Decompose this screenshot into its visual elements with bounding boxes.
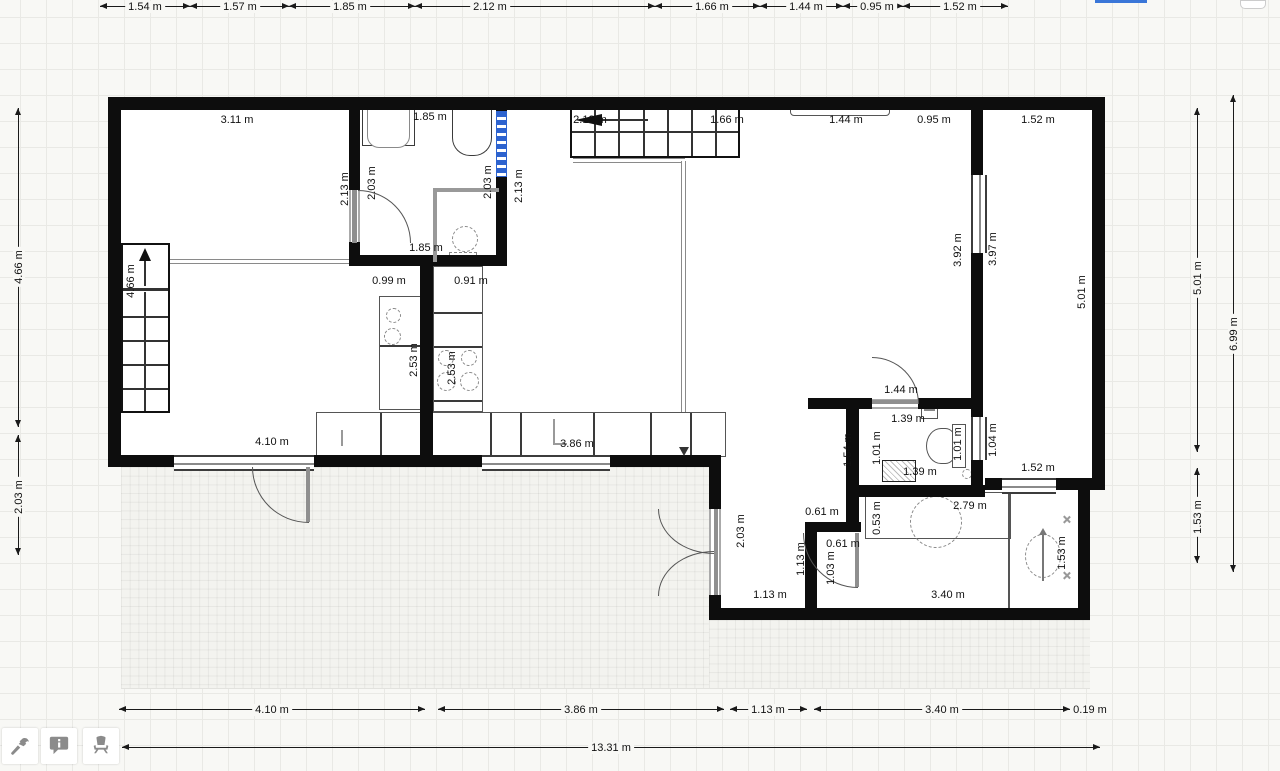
- dimension-label: 13.31 m: [588, 742, 634, 754]
- washer-front: [367, 106, 410, 148]
- dimension-label: 1.13 m: [748, 704, 788, 716]
- build-tool-button[interactable]: [2, 728, 38, 764]
- dimension-label: 2.03 m: [13, 477, 25, 517]
- wall-rightroom-bottom-b[interactable]: [1056, 478, 1105, 490]
- chair-icon: [90, 734, 112, 759]
- measurement-label: 1.01 m: [871, 431, 883, 465]
- measurement-label: 0.95 m: [917, 114, 951, 126]
- wall-left[interactable]: [108, 97, 121, 467]
- dimension-line: [896, 3, 903, 9]
- furniture-tool-button[interactable]: [83, 728, 119, 764]
- wall-rightroom-bottom-a[interactable]: [985, 478, 1002, 490]
- shower-drain: [452, 226, 478, 252]
- wall-bottom-c[interactable]: [610, 455, 721, 467]
- dimension-label: 1.66 m: [692, 1, 732, 13]
- dimension-line: [1093, 744, 1100, 750]
- dimension-line: [1194, 468, 1200, 475]
- door-leaf-wc[interactable]: [872, 400, 918, 404]
- dimension-label: 4.10 m: [252, 704, 292, 716]
- wall-bottom-a[interactable]: [108, 455, 174, 467]
- stove-burner-2: [461, 350, 477, 366]
- wall-rightroom-b[interactable]: [971, 253, 983, 400]
- dimension-label: 1.44 m: [786, 1, 826, 13]
- measurement-label: 2.12 m: [573, 114, 607, 126]
- dimension-line: [814, 706, 821, 712]
- measurement-label: 2.03 m: [366, 166, 378, 200]
- dimension-label: 0.19 m: [1070, 704, 1110, 716]
- measurement-label: 3.86 m: [560, 438, 594, 450]
- dimension-line: [1194, 445, 1200, 452]
- dimension-line: [15, 435, 21, 442]
- measurement-label: 1.39 m: [891, 413, 925, 425]
- terrace-area[interactable]: [121, 467, 709, 689]
- measurement-label: 5.01 m: [1076, 275, 1088, 309]
- dimension-line: [760, 3, 767, 9]
- measurement-label: 0.53 m: [871, 501, 883, 535]
- measurement-label: 0.61 m: [826, 538, 860, 550]
- kitchen-counter-right[interactable]: [433, 266, 483, 412]
- measurement-label: 3.11 m: [221, 114, 254, 126]
- measurement-label: 3.97 m: [987, 232, 999, 266]
- measurement-label: 3.92 m: [952, 233, 964, 267]
- floorplan-canvas[interactable]: 3.11 m1.85 m2.12 m1.66 m1.44 m0.95 m1.52…: [0, 0, 1280, 771]
- wall-right-upper[interactable]: [1092, 97, 1105, 490]
- measurement-label: 2.79 m: [953, 500, 987, 512]
- door-leaf-terrace[interactable]: [306, 467, 310, 522]
- wall-top[interactable]: [108, 97, 1105, 110]
- window-right-room[interactable]: [1002, 478, 1056, 494]
- measurement-label: 2.13 m: [339, 172, 351, 206]
- dimension-line: [190, 3, 197, 9]
- measurement-label: 1.01 m: [952, 427, 964, 461]
- measurement-label: 2.03 m: [482, 165, 494, 199]
- dimension-line: [1230, 95, 1236, 102]
- wall-lower-right[interactable]: [1078, 487, 1090, 620]
- wall-bottom-b[interactable]: [314, 455, 482, 467]
- measurement-label: 1.66 m: [710, 114, 744, 126]
- sink-bowl-1: [386, 308, 401, 323]
- dimension-line: [1194, 556, 1200, 563]
- window-living-lower[interactable]: [971, 417, 987, 460]
- chair-arrow: [1039, 528, 1047, 535]
- dimension-line: [717, 706, 724, 712]
- dimension-line: [15, 108, 21, 115]
- dimension-line: [418, 706, 425, 712]
- wall-hall-h[interactable]: [817, 522, 861, 532]
- dimension-line: [438, 706, 445, 712]
- dimension-label: 3.86 m: [561, 704, 601, 716]
- info-bubble-icon: [48, 734, 70, 759]
- dimension-line: [753, 3, 760, 9]
- dimension-line: [1001, 3, 1008, 9]
- measurement-label: 1.52 m: [1021, 114, 1055, 126]
- dimension-line: [655, 3, 662, 9]
- snap-mark-1: [1062, 515, 1071, 524]
- dimension-line: [119, 706, 126, 712]
- dimension-line: [1230, 565, 1236, 572]
- dimension-line: [730, 706, 737, 712]
- measurement-label: 1.13 m: [795, 542, 807, 576]
- top-edge-selected-tab[interactable]: [1095, 0, 1147, 3]
- dimension-label: 1.54 m: [125, 1, 165, 13]
- measurement-label: 3.40 m: [931, 589, 965, 601]
- measurement-label: 1.85 m: [413, 111, 447, 123]
- dimension-label: 4.66 m: [13, 247, 25, 287]
- measurement-label: 0.91 m: [454, 275, 488, 287]
- sink-bowl-2: [384, 328, 401, 345]
- measurement-label: 1.53 m: [1056, 536, 1068, 570]
- measurement-label: 1.44 m: [829, 114, 863, 126]
- dimension-label: 1.53 m: [1192, 497, 1204, 537]
- wall-bath-bottom[interactable]: [349, 255, 507, 266]
- dimension-label: 5.01 m: [1192, 258, 1204, 298]
- measurement-label: 1.39 m: [903, 466, 937, 478]
- dimension-line: [183, 3, 190, 9]
- dimension-line: [836, 3, 843, 9]
- dimension-line: [15, 548, 21, 555]
- top-edge-widget[interactable]: [1240, 0, 1266, 9]
- wall-wc-top-left[interactable]: [808, 398, 872, 409]
- measurement-label: 1.52 m: [1021, 462, 1055, 474]
- measurement-label: 1.54 m: [842, 433, 854, 467]
- dimension-label: 6.99 m: [1228, 314, 1240, 354]
- wall-lower-left-a[interactable]: [709, 455, 721, 509]
- dimension-label: 2.12 m: [470, 1, 510, 13]
- dimension-label: 1.85 m: [330, 1, 370, 13]
- annotation-tool-button[interactable]: [41, 728, 77, 764]
- window-selected[interactable]: [497, 112, 506, 176]
- railing-top[interactable]: [573, 158, 685, 163]
- measurement-label: 4.10 m: [255, 436, 289, 448]
- dimension-line: [415, 3, 422, 9]
- window-living-upper[interactable]: [971, 175, 987, 253]
- wall-wc-bottom[interactable]: [846, 485, 985, 497]
- dimension-line: [100, 3, 107, 9]
- dimension-line: [122, 744, 129, 750]
- measurement-label: 2.13 m: [513, 169, 525, 203]
- railing-vertical[interactable]: [681, 161, 686, 449]
- measurement-label: 1.44 m: [884, 384, 918, 396]
- measurement-label: 2.03 m: [735, 514, 747, 548]
- window-bottom-center[interactable]: [482, 455, 610, 471]
- dimension-line: [289, 3, 296, 9]
- measurement-label: 4.66 m: [125, 264, 137, 298]
- wall-lower-bottom[interactable]: [709, 608, 1090, 620]
- measurement-label: 1.13 m: [753, 589, 787, 601]
- wall-wc-top-right[interactable]: [918, 398, 971, 409]
- terrace-area-right[interactable]: [709, 620, 1090, 689]
- dimension-label: 3.40 m: [922, 704, 962, 716]
- door-leaf-double[interactable]: [714, 509, 718, 595]
- dimension-label: 1.52 m: [940, 1, 980, 13]
- dimension-label: 0.95 m: [857, 1, 897, 13]
- railing-arrow: [679, 447, 689, 456]
- dimension-line: [1063, 706, 1070, 712]
- dimension-label: 1.57 m: [220, 1, 260, 13]
- dimension-line: [843, 3, 850, 9]
- wall-kitchen[interactable]: [420, 266, 433, 456]
- measurement-label: 1.85 m: [409, 242, 443, 254]
- measurement-label: 2.53 m: [408, 343, 420, 377]
- dimension-line: [282, 3, 289, 9]
- dimension-line: [903, 3, 910, 9]
- stove-burner-4: [460, 372, 479, 391]
- measurement-label: 0.61 m: [805, 506, 839, 518]
- wall-wc-left[interactable]: [846, 409, 859, 532]
- dimension-line: [1194, 108, 1200, 115]
- hammer-icon: [9, 734, 31, 759]
- dimension-line: [648, 3, 655, 9]
- partition-glass[interactable]: [170, 259, 350, 264]
- dimension-line: [15, 420, 21, 427]
- wall-rightroom-a[interactable]: [971, 110, 983, 175]
- stair-arrow-up: [139, 248, 151, 261]
- measurement-label: 2.53 m: [446, 351, 458, 385]
- door-leaf-bathroom[interactable]: [352, 190, 357, 243]
- measurement-label: 1.03 m: [825, 551, 837, 585]
- dimension-line: [800, 706, 807, 712]
- measurement-label: 0.99 m: [372, 275, 406, 287]
- wall-rightroom-c[interactable]: [971, 398, 983, 417]
- snap-mark-2: [1062, 571, 1071, 580]
- dimension-line: [415, 6, 655, 7]
- dimension-line: [408, 3, 415, 9]
- measurement-label: 1.04 m: [987, 423, 999, 457]
